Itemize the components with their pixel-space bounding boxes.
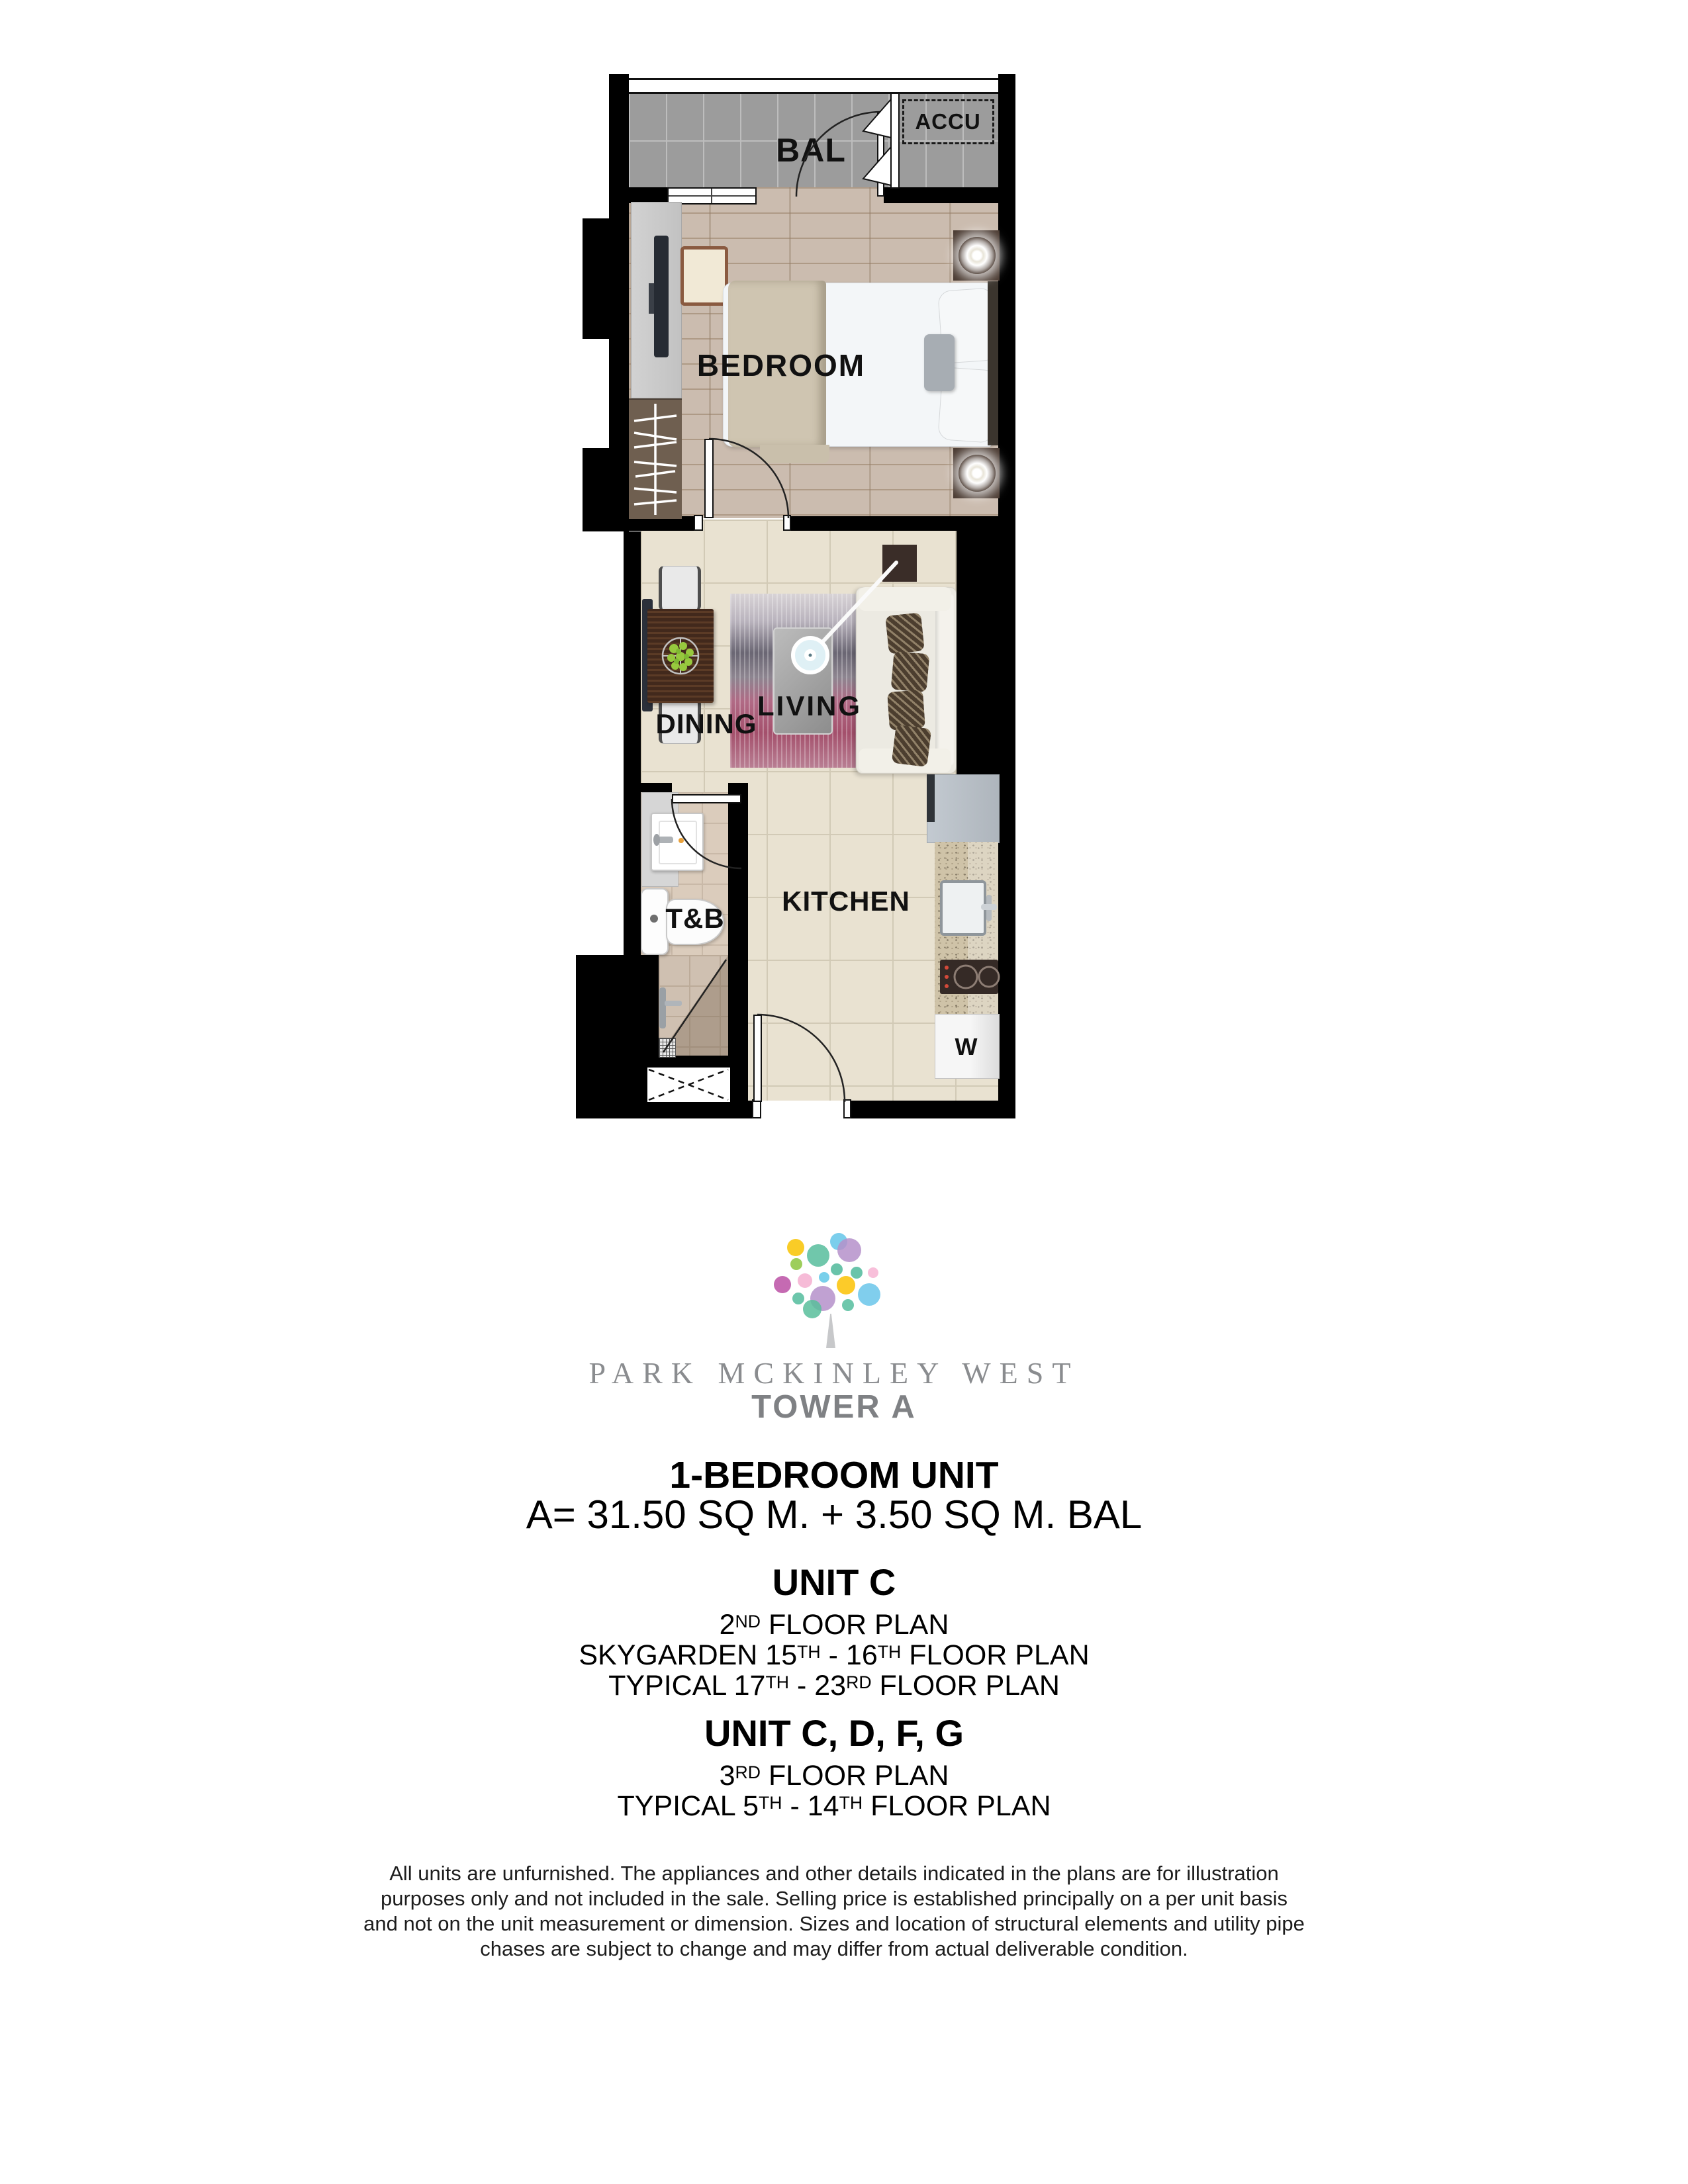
label-tb: T&B bbox=[665, 903, 724, 934]
logo-dot bbox=[842, 1299, 854, 1311]
bedroom-chair bbox=[680, 246, 728, 306]
section-unit-c: UNIT C 2ND FLOOR PLANSKYGARDEN 15TH - 16… bbox=[271, 1561, 1397, 1703]
wall-left-3 bbox=[624, 531, 641, 955]
unit-type-heading: 1-BEDROOM UNIT bbox=[271, 1453, 1397, 1497]
logo-dot bbox=[774, 1276, 791, 1293]
bed-blanket-drape bbox=[760, 445, 829, 463]
wall-shower-left-block bbox=[576, 955, 659, 1056]
label-accu: ACCU bbox=[915, 109, 980, 134]
label-kitchen: KITCHEN bbox=[782, 886, 910, 917]
logo-dot bbox=[837, 1238, 861, 1262]
balcony-divider-jamb bbox=[890, 93, 900, 189]
section-unit-c-lines: 2ND FLOOR PLANSKYGARDEN 15TH - 16TH FLOO… bbox=[271, 1612, 1397, 1703]
door-frame-entry-right bbox=[843, 1099, 851, 1118]
bedroom-door-leaf bbox=[704, 439, 714, 518]
sofa-pillow-4 bbox=[892, 725, 932, 767]
bed-runner-pillow bbox=[924, 334, 955, 391]
shower-valve bbox=[659, 987, 666, 1028]
logo-dot bbox=[792, 1293, 804, 1304]
pipe-chase-box bbox=[647, 1068, 730, 1102]
logo-dot bbox=[798, 1273, 812, 1288]
dining-table bbox=[647, 609, 714, 703]
fridge bbox=[927, 774, 1000, 843]
tb-door-leaf bbox=[672, 794, 741, 803]
logo-dot bbox=[787, 1239, 804, 1256]
toilet-flush-button bbox=[650, 915, 658, 923]
wall-living-right-bump bbox=[957, 520, 998, 776]
entry-door-leaf bbox=[753, 1015, 762, 1102]
lamp-bottom bbox=[959, 455, 996, 492]
door-frame-bedroom-right bbox=[783, 515, 791, 531]
unit-area: A= 31.50 SQ M. + 3.50 SQ M. BAL bbox=[271, 1492, 1397, 1537]
wall-left-bump-2 bbox=[583, 448, 629, 531]
sofa-pillow-1 bbox=[885, 612, 925, 654]
logo-dot bbox=[807, 1244, 829, 1267]
stove bbox=[940, 960, 998, 994]
section-unit-c-title: UNIT C bbox=[271, 1561, 1397, 1604]
wall-left-2 bbox=[609, 339, 629, 448]
fridge-handle bbox=[927, 774, 935, 822]
dining-chair-top bbox=[659, 566, 701, 611]
label-washer: W bbox=[955, 1033, 978, 1061]
logo-dot bbox=[837, 1276, 855, 1295]
logo-dot bbox=[831, 1263, 843, 1275]
wardrobe bbox=[629, 398, 682, 519]
shower-valve-arm bbox=[665, 1001, 682, 1006]
logo-dot bbox=[803, 1300, 821, 1318]
lamp-top bbox=[959, 237, 996, 274]
wall-balcony-bottom-left bbox=[629, 187, 667, 203]
bedroom-tv-bracket bbox=[649, 283, 654, 314]
section-unit-cdfg-lines: 3RD FLOOR PLANTYPICAL 5TH - 14TH FLOOR P… bbox=[271, 1762, 1397, 1823]
sofa-pillow-3 bbox=[887, 690, 925, 731]
label-dining: DINING bbox=[656, 708, 757, 740]
wall-balcony-bottom-right bbox=[884, 187, 998, 203]
label-bal: BAL bbox=[776, 131, 846, 169]
logo-dot bbox=[868, 1267, 878, 1278]
kitchen-faucet-handle bbox=[981, 904, 997, 910]
section-unit-cdfg-title: UNIT C, D, F, G bbox=[271, 1711, 1397, 1754]
wall-left-bump-1 bbox=[583, 218, 629, 339]
wall-tb-top bbox=[624, 783, 672, 792]
tb-sink bbox=[651, 813, 704, 871]
logo-dot bbox=[790, 1258, 802, 1270]
logo-dot bbox=[851, 1267, 863, 1279]
wall-tb-right bbox=[728, 783, 748, 1118]
wall-left-1 bbox=[609, 74, 629, 218]
tower-name: TOWER A bbox=[271, 1388, 1397, 1426]
sofa-backrest bbox=[935, 592, 954, 767]
logo-dot bbox=[858, 1283, 880, 1306]
brand-wordmark: PARK MCKINLEY WEST bbox=[271, 1355, 1397, 1390]
wall-bottom-seg-2 bbox=[851, 1101, 998, 1118]
kitchen-sink bbox=[940, 880, 986, 936]
section-unit-cdfg: UNIT C, D, F, G 3RD FLOOR PLANTYPICAL 5T… bbox=[271, 1711, 1397, 1823]
door-frame-bedroom-left bbox=[694, 515, 703, 531]
label-bedroom: BEDROOM bbox=[697, 347, 865, 383]
floor-lamp-base bbox=[882, 545, 917, 582]
shower-drain bbox=[659, 1038, 676, 1058]
balcony-door-leaf bbox=[877, 112, 884, 197]
bedroom-tv bbox=[654, 236, 669, 357]
label-living: LIVING bbox=[757, 690, 862, 722]
wall-right bbox=[998, 74, 1015, 1118]
sofa-pillow-2 bbox=[891, 651, 930, 692]
sofa-armrest-top bbox=[859, 587, 951, 611]
floor-plan-page: BAL ACCU BEDROOM DINING LIVING T&B KITCH… bbox=[0, 0, 1688, 2184]
door-frame-entry-left bbox=[752, 1099, 761, 1118]
logo-dot bbox=[819, 1272, 829, 1283]
bed-headboard bbox=[988, 281, 998, 445]
balcony-railing bbox=[629, 78, 998, 94]
disclaimer: All units are unfurnished. The appliance… bbox=[361, 1861, 1307, 1962]
